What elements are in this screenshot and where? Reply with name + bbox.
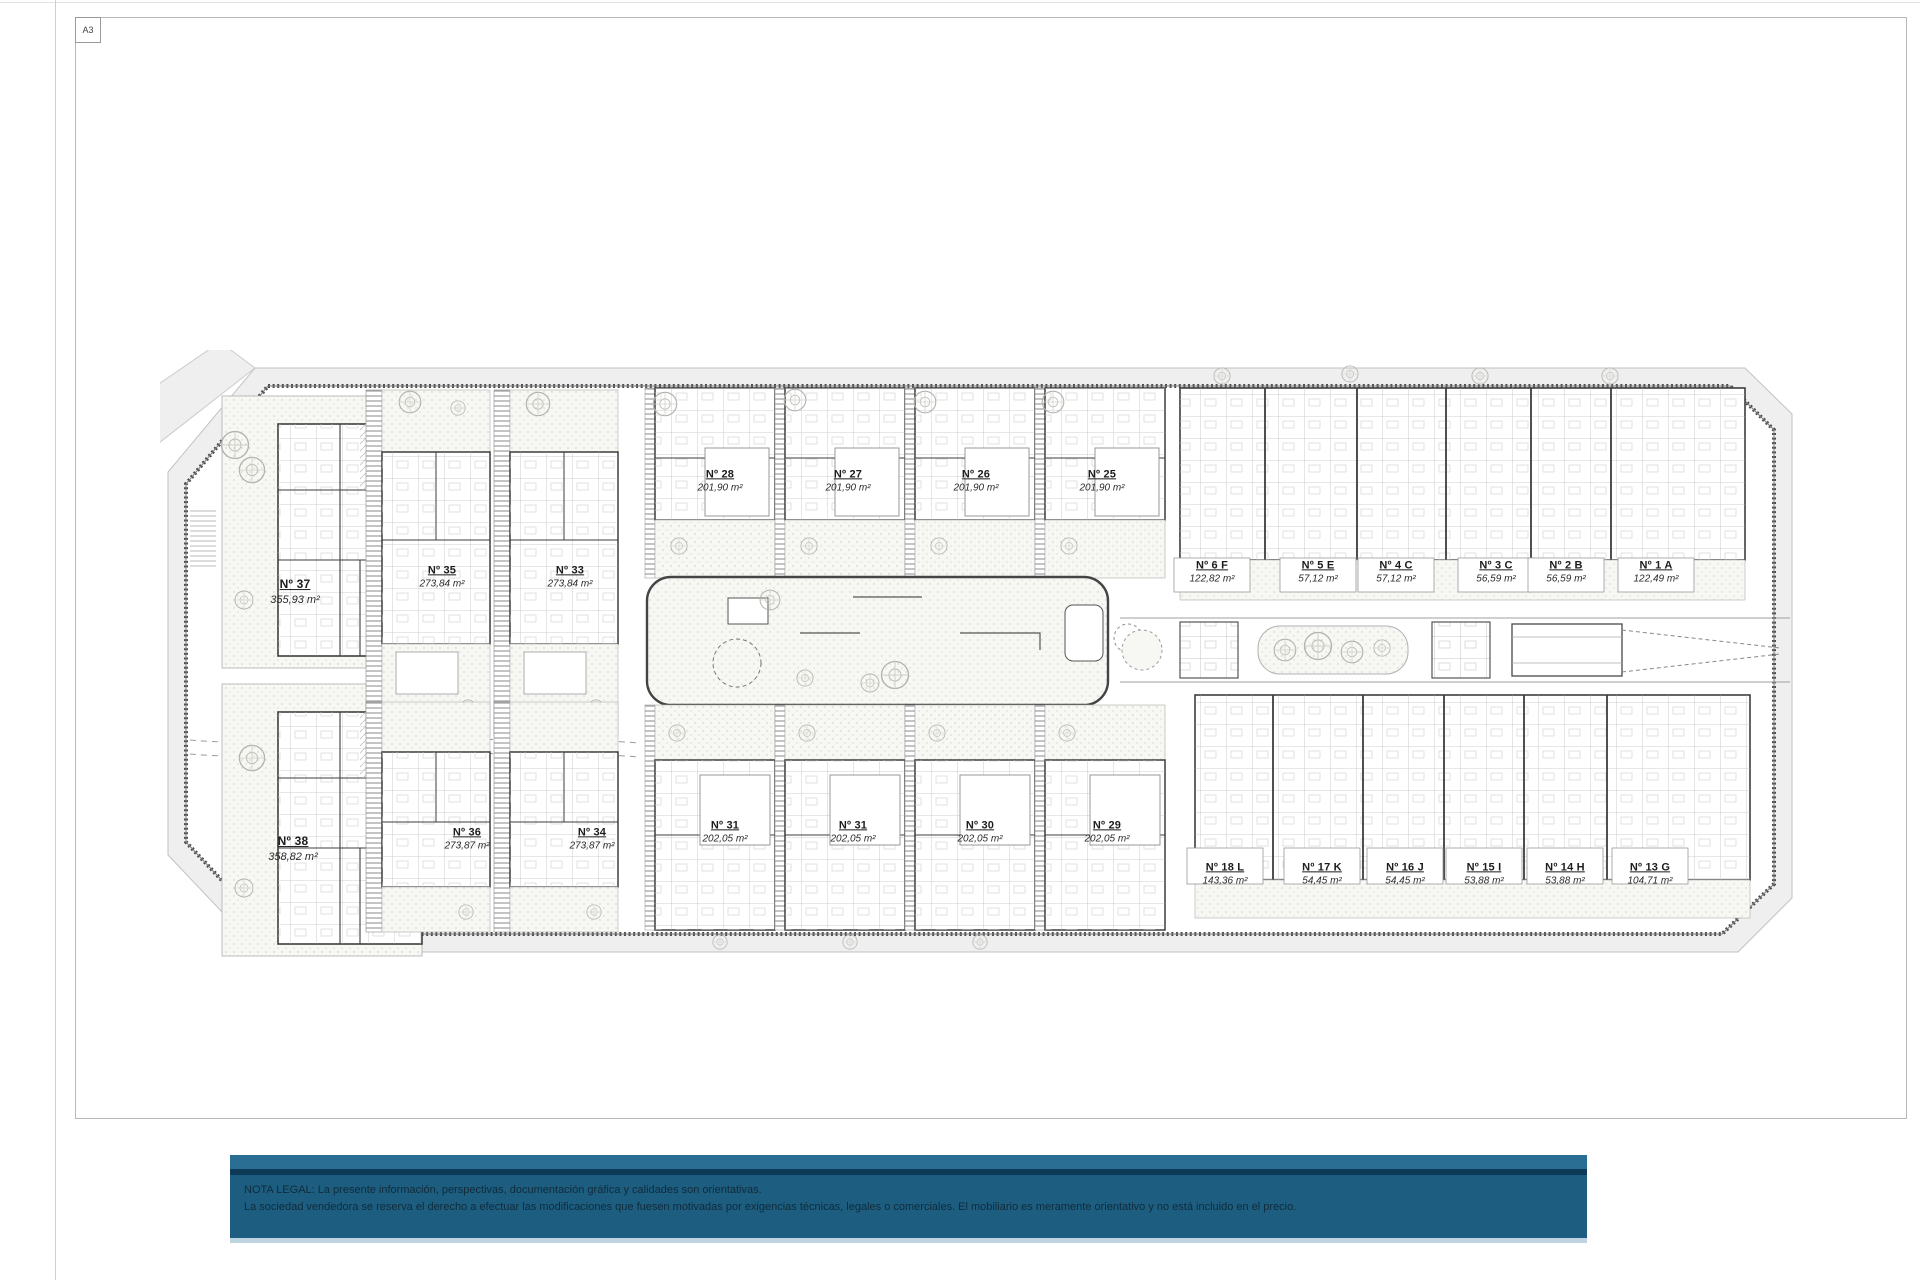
unit-number: Nº 3 C [1479, 558, 1512, 572]
unit-label-6f: Nº 6 F 122,82 m² [1189, 558, 1234, 585]
unit-area: 104,71 m² [1627, 875, 1672, 888]
unit-label-26: Nº 26 201,90 m² [953, 467, 998, 494]
unit-area: 201,90 m² [953, 482, 998, 495]
unit-area: 56,59 m² [1546, 573, 1585, 586]
unit-area: 122,82 m² [1189, 573, 1234, 586]
legal-note-body: NOTA LEGAL: La presente información, per… [230, 1175, 1587, 1238]
unit-number: Nº 4 C [1379, 558, 1412, 572]
unit-number: Nº 18 L [1206, 860, 1244, 874]
central-courtyard [647, 577, 1142, 705]
unit-area: 143,36 m² [1202, 875, 1247, 888]
unit-label-31b: Nº 31 202,05 m² [830, 818, 875, 845]
unit-area: 273,84 m² [547, 578, 592, 591]
unit-number: Nº 28 [706, 467, 734, 481]
unit-area: 57,12 m² [1298, 573, 1337, 586]
unit-label-31a: Nº 31 202,05 m² [702, 818, 747, 845]
unit-area: 122,49 m² [1633, 573, 1678, 586]
unit-label-15i: Nº 15 I 53,88 m² [1464, 860, 1503, 887]
unit-number: Nº 15 I [1467, 860, 1502, 874]
unit-label-30: Nº 30 202,05 m² [957, 818, 1002, 845]
unit-label-25: Nº 25 201,90 m² [1079, 467, 1124, 494]
unit-label-5e: Nº 5 E 57,12 m² [1298, 558, 1337, 585]
unit-number: Nº 33 [556, 563, 584, 577]
unit-area: 56,59 m² [1476, 573, 1515, 586]
unit-label-16j: Nº 16 J 54,45 m² [1385, 860, 1424, 887]
legal-banner-top-band [230, 1155, 1587, 1169]
unit-area: 355,93 m² [270, 593, 320, 607]
page-top-rule [0, 2, 1920, 3]
unit-area: 201,90 m² [825, 482, 870, 495]
unit-number: Nº 37 [280, 577, 311, 593]
unit-area: 201,90 m² [1079, 482, 1124, 495]
unit-number: Nº 17 K [1302, 860, 1342, 874]
unit-label-3c: Nº 3 C 56,59 m² [1476, 558, 1515, 585]
floor-plan-drawing [160, 350, 1810, 985]
unit-number: Nº 6 F [1196, 558, 1228, 572]
unit-area: 273,84 m² [419, 578, 464, 591]
unit-number: Nº 2 B [1549, 558, 1582, 572]
unit-label-34: Nº 34 273,87 m² [569, 825, 614, 852]
sheet-format-label: A3 [75, 17, 101, 43]
unit-number: Nº 31 [711, 818, 739, 832]
unit-label-2b: Nº 2 B 56,59 m² [1546, 558, 1585, 585]
unit-label-37: Nº 37 355,93 m² [270, 577, 320, 607]
unit-label-13g: Nº 13 G 104,71 m² [1627, 860, 1672, 887]
unit-number: Nº 1 A [1640, 558, 1673, 572]
unit-area: 201,90 m² [697, 482, 742, 495]
unit-number: Nº 14 H [1545, 860, 1585, 874]
legal-banner-bottom-strip [230, 1238, 1587, 1243]
unit-number: Nº 25 [1088, 467, 1116, 481]
unit-label-4c: Nº 4 C 57,12 m² [1376, 558, 1415, 585]
plan-sheet: A3 [0, 0, 1920, 1280]
unit-number: Nº 30 [966, 818, 994, 832]
unit-label-14h: Nº 14 H 53,88 m² [1545, 860, 1585, 887]
unit-area: 358,82 m² [268, 850, 318, 864]
unit-number: Nº 5 E [1302, 558, 1335, 572]
unit-number: Nº 16 J [1386, 860, 1424, 874]
unit-area: 273,87 m² [569, 840, 614, 853]
unit-area: 202,05 m² [702, 833, 747, 846]
unit-number: Nº 26 [962, 467, 990, 481]
unit-number: Nº 29 [1093, 818, 1121, 832]
unit-label-28: Nº 28 201,90 m² [697, 467, 742, 494]
unit-number: Nº 38 [278, 834, 309, 850]
unit-area: 54,45 m² [1385, 875, 1424, 888]
unit-number: Nº 27 [834, 467, 862, 481]
page-left-rule [55, 0, 56, 1280]
unit-number: Nº 34 [578, 825, 606, 839]
unit-area: 202,05 m² [830, 833, 875, 846]
legal-note-banner: NOTA LEGAL: La presente información, per… [230, 1155, 1587, 1243]
unit-number: Nº 31 [839, 818, 867, 832]
legal-note-line2: La sociedad vendedora se reserva el dere… [244, 1199, 1573, 1216]
legal-note-line1: NOTA LEGAL: La presente información, per… [244, 1182, 1573, 1199]
unit-label-27: Nº 27 201,90 m² [825, 467, 870, 494]
unit-area: 53,88 m² [1464, 875, 1503, 888]
unit-area: 202,05 m² [957, 833, 1002, 846]
unit-area: 53,88 m² [1545, 875, 1584, 888]
unit-label-17k: Nº 17 K 54,45 m² [1302, 860, 1342, 887]
unit-label-38: Nº 38 358,82 m² [268, 834, 318, 864]
unit-area: 57,12 m² [1376, 573, 1415, 586]
unit-area: 273,87 m² [444, 840, 489, 853]
unit-area: 54,45 m² [1302, 875, 1341, 888]
unit-number: Nº 36 [453, 825, 481, 839]
unit-label-33: Nº 33 273,84 m² [547, 563, 592, 590]
unit-label-1a: Nº 1 A 122,49 m² [1633, 558, 1678, 585]
unit-label-35: Nº 35 273,84 m² [419, 563, 464, 590]
unit-label-18l: Nº 18 L 143,36 m² [1202, 860, 1247, 887]
unit-label-29: Nº 29 202,05 m² [1084, 818, 1129, 845]
unit-number: Nº 13 G [1630, 860, 1670, 874]
unit-number: Nº 35 [428, 563, 456, 577]
unit-label-36: Nº 36 273,87 m² [444, 825, 489, 852]
unit-area: 202,05 m² [1084, 833, 1129, 846]
